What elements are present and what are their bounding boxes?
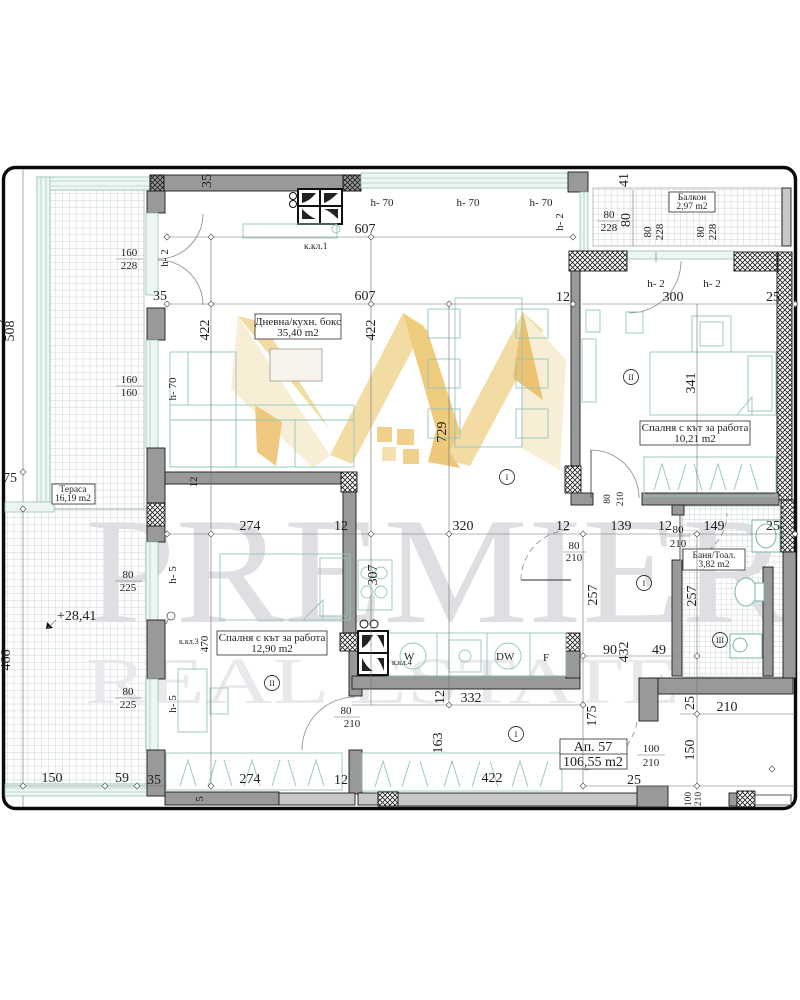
svg-text:80: 80 (603, 494, 613, 504)
svg-text:257: 257 (586, 585, 601, 606)
svg-text:422: 422 (198, 320, 213, 341)
svg-text:49: 49 (652, 643, 666, 658)
svg-text:75: 75 (3, 471, 17, 486)
svg-text:12: 12 (188, 477, 200, 488)
svg-text:h- 5: h- 5 (167, 695, 179, 713)
svg-text:80: 80 (604, 209, 616, 221)
svg-text:59: 59 (115, 771, 129, 786)
svg-text:106,55 m2: 106,55 m2 (563, 755, 623, 770)
svg-text:2,97 m2: 2,97 m2 (676, 202, 707, 212)
svg-text:PREMIER: PREMIER (85, 487, 791, 655)
svg-text:210: 210 (616, 492, 626, 507)
svg-text:I: I (515, 730, 518, 739)
svg-text:160: 160 (121, 387, 138, 399)
svg-text:228: 228 (601, 222, 618, 234)
svg-text:150: 150 (683, 740, 698, 761)
svg-text:II: II (628, 373, 634, 382)
svg-text:607: 607 (355, 222, 376, 237)
svg-text:80: 80 (123, 686, 135, 698)
svg-text:90: 90 (603, 643, 617, 658)
svg-text:к.кл.1: к.кл.1 (304, 242, 328, 252)
svg-text:225: 225 (120, 582, 137, 594)
svg-text:DW: DW (496, 651, 515, 663)
svg-text:h- 70: h- 70 (371, 197, 394, 209)
svg-text:25: 25 (766, 290, 780, 305)
svg-text:35: 35 (153, 289, 167, 304)
svg-text:228: 228 (654, 223, 666, 240)
svg-text:228: 228 (121, 260, 138, 272)
svg-text:210: 210 (344, 718, 361, 730)
svg-text:422: 422 (482, 771, 503, 786)
svg-text:80: 80 (341, 705, 353, 717)
svg-text:к.кл.4: к.кл.4 (392, 658, 412, 667)
svg-text:470: 470 (199, 635, 211, 652)
svg-text:10,21 m2: 10,21 m2 (674, 433, 716, 445)
svg-text:12: 12 (334, 773, 348, 788)
svg-text:100: 100 (684, 792, 694, 807)
svg-text:341: 341 (684, 373, 699, 394)
svg-text:h- 2: h- 2 (703, 278, 720, 290)
svg-text:35: 35 (147, 773, 161, 788)
svg-text:25: 25 (627, 773, 641, 788)
svg-text:3,82 m2: 3,82 m2 (698, 560, 729, 570)
svg-text:35: 35 (200, 174, 215, 188)
svg-text:12: 12 (658, 519, 672, 534)
svg-text:332: 332 (461, 691, 482, 706)
svg-text:210: 210 (566, 552, 583, 564)
svg-text:I: I (643, 579, 646, 588)
svg-text:16,19 m2: 16,19 m2 (55, 494, 91, 504)
svg-text:h- 2: h- 2 (554, 213, 566, 230)
svg-text:80: 80 (695, 226, 707, 238)
svg-text:466: 466 (0, 650, 14, 671)
svg-text:h- 2: h- 2 (647, 278, 664, 290)
svg-text:II: II (269, 679, 275, 688)
svg-text:100: 100 (643, 743, 660, 755)
svg-text:+28,41: +28,41 (57, 609, 96, 624)
svg-text:к.кл.3: к.кл.3 (179, 637, 199, 646)
svg-text:h- 70: h- 70 (457, 197, 480, 209)
svg-text:80: 80 (569, 540, 581, 552)
svg-text:422: 422 (364, 320, 379, 341)
svg-text:2: 2 (0, 319, 9, 326)
svg-text:160: 160 (121, 374, 138, 386)
svg-text:80: 80 (673, 524, 685, 536)
svg-text:25: 25 (683, 696, 698, 710)
svg-text:175: 175 (585, 706, 600, 727)
svg-text:210: 210 (643, 757, 660, 769)
svg-text:210: 210 (670, 538, 687, 550)
svg-text:607: 607 (355, 289, 376, 304)
svg-text:h- 70: h- 70 (167, 377, 179, 400)
svg-text:12: 12 (556, 290, 570, 305)
svg-text:150: 150 (42, 771, 63, 786)
svg-text:F: F (543, 652, 549, 664)
svg-text:5: 5 (194, 796, 206, 802)
svg-text:Ап. 57: Ап. 57 (574, 740, 613, 755)
svg-text:12: 12 (433, 690, 448, 704)
svg-text:210: 210 (694, 792, 704, 807)
svg-text:III: III (716, 636, 724, 645)
svg-text:h- 5: h- 5 (167, 566, 179, 584)
svg-text:12: 12 (556, 519, 570, 534)
svg-text:210: 210 (717, 700, 738, 715)
svg-text:12: 12 (334, 519, 348, 534)
svg-text:729: 729 (435, 422, 450, 443)
svg-text:163: 163 (431, 733, 446, 754)
svg-text:228: 228 (707, 223, 719, 240)
svg-text:h- 2: h- 2 (159, 249, 171, 266)
svg-text:h- 70: h- 70 (530, 197, 553, 209)
svg-text:80: 80 (642, 226, 654, 238)
svg-text:432: 432 (617, 642, 632, 663)
svg-text:35,40 m2: 35,40 m2 (277, 327, 319, 339)
svg-text:139: 139 (611, 519, 632, 534)
svg-text:257: 257 (685, 586, 700, 607)
svg-text:307: 307 (366, 565, 381, 586)
svg-text:300: 300 (663, 290, 684, 305)
svg-text:80: 80 (123, 569, 135, 581)
svg-text:25: 25 (766, 519, 780, 534)
svg-text:12,90 m2: 12,90 m2 (251, 643, 293, 655)
svg-text:160: 160 (121, 247, 138, 259)
svg-text:149: 149 (704, 519, 725, 534)
svg-text:I: I (506, 473, 509, 482)
svg-text:274: 274 (240, 772, 261, 787)
svg-text:225: 225 (120, 699, 137, 711)
svg-text:320: 320 (453, 519, 474, 534)
svg-text:80: 80 (619, 213, 634, 227)
svg-text:41: 41 (617, 173, 632, 187)
svg-text:274: 274 (240, 519, 261, 534)
